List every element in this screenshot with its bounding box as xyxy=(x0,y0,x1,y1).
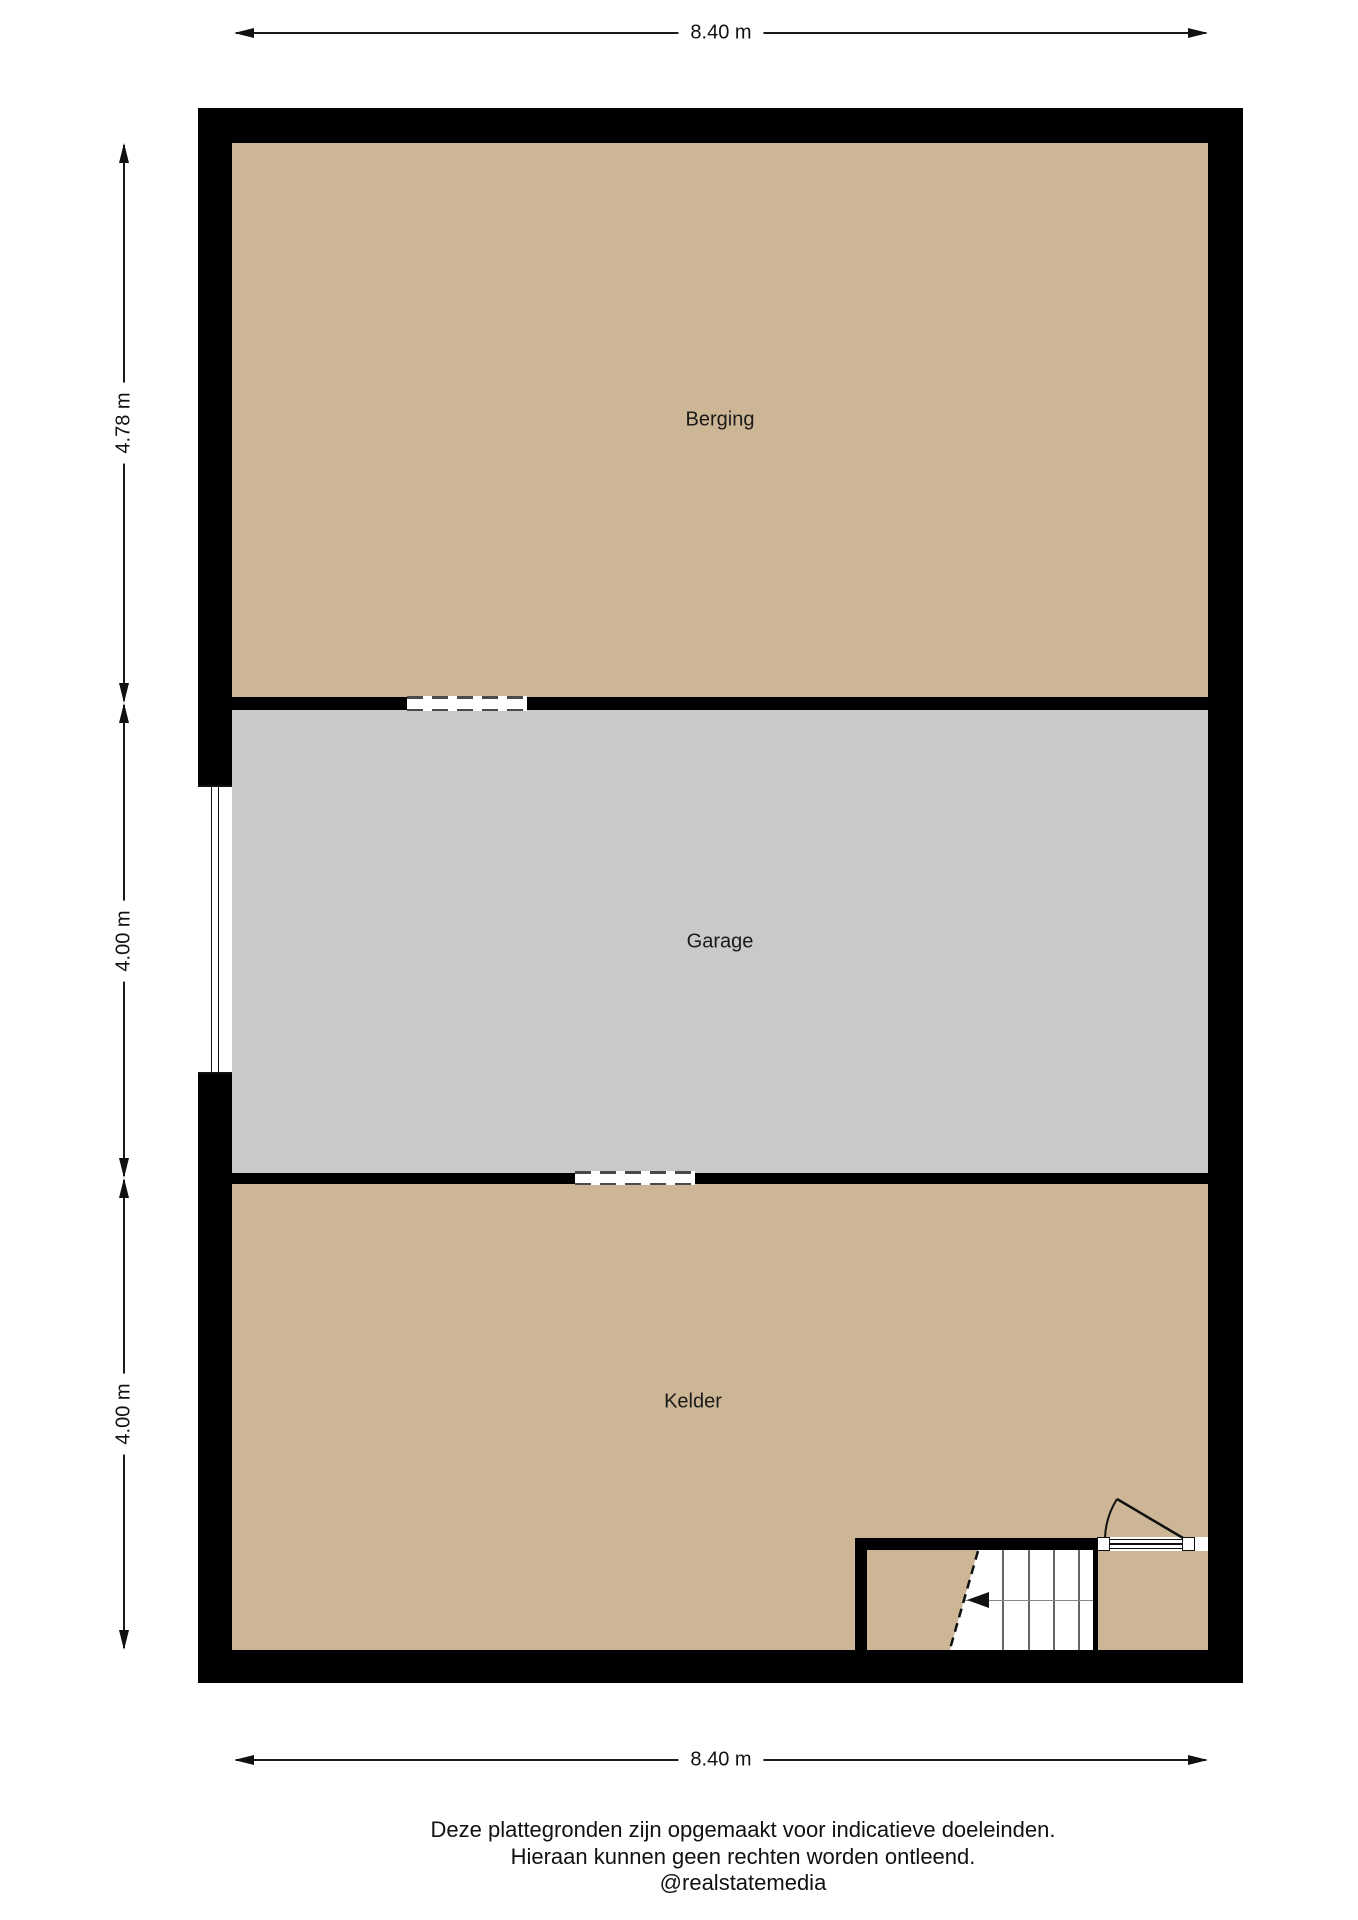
footer-line-1: Deze plattegronden zijn opgemaakt voor i… xyxy=(128,1817,1358,1844)
door-panel-line xyxy=(1110,1548,1182,1550)
window-glass xyxy=(211,787,219,1072)
footer-credit: @realstatemedia xyxy=(128,1870,1358,1897)
door-panel-line xyxy=(1110,1539,1182,1541)
arrow-up-icon xyxy=(119,1178,129,1198)
dimension-left-kelder: 4.00 m xyxy=(114,1178,134,1650)
dimension-left-berging: 4.78 m xyxy=(114,143,134,703)
berging-garage-opening xyxy=(407,696,527,711)
arrow-up-icon xyxy=(119,143,129,163)
arrow-right-icon xyxy=(1188,1755,1208,1765)
room-berging: Berging xyxy=(232,143,1208,697)
room-label-kelder: Kelder xyxy=(664,1391,722,1414)
door-jamb-right xyxy=(1182,1537,1195,1551)
dimension-label-garage-height: 4.00 m xyxy=(113,900,136,981)
garage-window xyxy=(198,785,232,1074)
dashed-line xyxy=(575,1171,695,1174)
arrow-up-icon xyxy=(119,703,129,723)
dimension-bottom: 8.40 m xyxy=(234,1751,1208,1769)
footer-disclaimer: Deze plattegronden zijn opgemaakt voor i… xyxy=(0,1817,1358,1897)
garage-kelder-opening xyxy=(575,1171,695,1185)
stair-wall-vertical xyxy=(855,1538,867,1650)
arrow-right-icon xyxy=(1188,28,1208,38)
dashed-line xyxy=(407,709,527,712)
dimension-label-berging-height: 4.78 m xyxy=(113,382,136,463)
stair-wall-right xyxy=(1093,1550,1098,1650)
footer-line-2: Hieraan kunnen geen rechten worden ontle… xyxy=(128,1844,1358,1871)
dashed-line xyxy=(575,1183,695,1186)
arrow-down-icon xyxy=(119,683,129,703)
arrow-down-icon xyxy=(119,1630,129,1650)
arrow-left-icon xyxy=(234,28,254,38)
room-garage: Garage xyxy=(232,710,1208,1173)
floorplan: Berging Garage Kelder xyxy=(198,108,1243,1683)
room-label-berging: Berging xyxy=(686,409,755,432)
dimension-label-kelder-height: 4.00 m xyxy=(113,1373,136,1454)
stair-direction-arrow-icon xyxy=(967,1592,989,1608)
arrow-left-icon xyxy=(234,1755,254,1765)
kelder-door-opening xyxy=(1097,1537,1208,1551)
door-jamb-left xyxy=(1097,1537,1110,1551)
room-label-garage: Garage xyxy=(687,930,754,953)
dashed-line xyxy=(407,696,527,699)
dimension-top: 8.40 m xyxy=(234,24,1208,42)
floorplan-canvas: 8.40 m 4.78 m 4.00 m 4.00 m Berging Gara… xyxy=(0,0,1358,1920)
door-panel-line xyxy=(1110,1543,1182,1545)
dimension-label-bottom: 8.40 m xyxy=(678,1749,763,1772)
arrow-down-icon xyxy=(119,1158,129,1178)
dimension-left-garage: 4.00 m xyxy=(114,703,134,1178)
stair-wall-horizontal xyxy=(855,1538,1098,1550)
dimension-label-top: 8.40 m xyxy=(678,22,763,45)
